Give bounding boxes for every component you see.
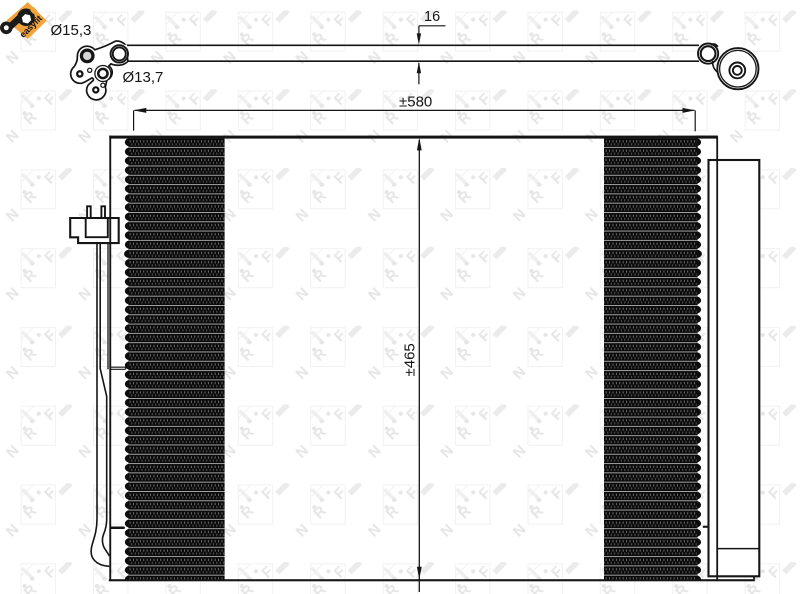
svg-text:16: 16 xyxy=(424,9,440,25)
svg-text:±580: ±580 xyxy=(399,93,432,110)
svg-text:±465: ±465 xyxy=(402,343,419,376)
svg-text:Ø13,7: Ø13,7 xyxy=(123,69,164,86)
svg-text:Ø15,3: Ø15,3 xyxy=(51,22,92,39)
